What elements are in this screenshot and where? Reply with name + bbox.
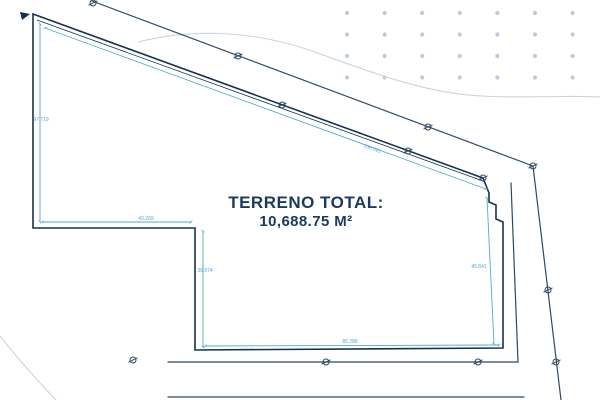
grid-dot [420,54,424,58]
grid-dot [420,32,424,36]
dimension-label-bottom: 85.288 [342,339,358,345]
survey-point-icon [474,359,483,365]
site-plan-drawing: 130.091 97.719 43.269 36.974 85.288 45.8… [0,0,600,400]
grid-dot [571,32,575,36]
dimension-label-notch-width: 43.269 [138,216,154,222]
grid-dot [533,32,537,36]
grid-dot [345,75,349,79]
grid-dot [533,11,537,15]
grid-dot [345,54,349,58]
grid-dot [383,32,387,36]
parcel-outline [33,14,503,350]
grid-dot [495,75,499,79]
dimension-line-bottom [205,345,499,346]
grid-dot [420,75,424,79]
corner-arrow-icon [20,12,30,20]
grid-dot [571,54,575,58]
dimension-label-notch-height: 36.974 [197,268,213,274]
grid-dot [571,75,575,79]
grid-dot [458,75,462,79]
grid-dot [345,32,349,36]
grid-dot [458,54,462,58]
grid-dot [495,32,499,36]
dimension-line-right [487,198,494,344]
grid-dot [383,11,387,15]
parcel-double-top-edge [37,20,483,181]
grid-dot [458,32,462,36]
survey-point-icon [322,359,331,365]
dot-grid [345,11,575,80]
grid-dot [533,54,537,58]
survey-point-icon [129,357,138,363]
dimension-lines: 130.091 97.719 43.269 36.974 85.288 45.8… [33,24,499,347]
dimension-label-left: 97.719 [33,117,49,123]
terrain-area-value: 10,688.75 M² [259,213,352,230]
grid-dot [458,11,462,15]
site-plan: 130.091 97.719 43.269 36.974 85.288 45.8… [0,0,600,400]
street-edge-north [92,1,533,166]
grid-dot [383,54,387,58]
grid-dot [495,11,499,15]
contour-line-bottom-left [0,335,57,400]
grid-dot [495,54,499,58]
property-boundary [33,14,503,350]
grid-dot [345,11,349,15]
grid-dot [533,75,537,79]
dimension-label-right: 45.841 [471,264,487,270]
dimension-line-top [45,28,486,189]
grid-dot [571,11,575,15]
grid-dot [420,11,424,15]
dimension-label-top: 130.091 [363,143,382,155]
survey-points [89,0,561,365]
terrain-title: TERRENO TOTAL: [228,193,384,212]
